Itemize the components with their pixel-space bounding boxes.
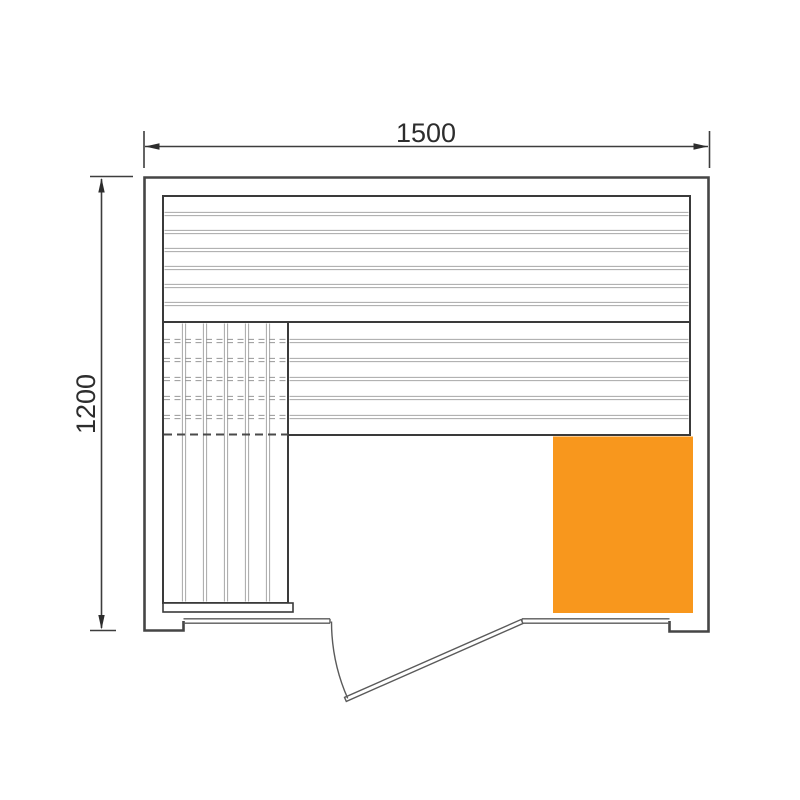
dimension-depth: 1200: [71, 177, 133, 631]
upper-bench: [163, 196, 690, 322]
door-swing-arc: [332, 622, 348, 699]
door: [332, 619, 523, 701]
arrow-left-icon: [145, 143, 160, 149]
side-bench: [163, 322, 293, 612]
floor-plan-drawing: 1500 1200: [0, 0, 800, 800]
lower-bench: [288, 322, 690, 435]
front-wall-left-segment: [184, 619, 331, 623]
upper-bench-outline: [163, 196, 690, 322]
door-leaf: [345, 619, 523, 701]
depth-dimension-label: 1200: [71, 374, 101, 434]
arrow-right-icon: [694, 143, 709, 149]
heater-block: [553, 437, 693, 614]
floor-plan-page: 1500 1200: [0, 0, 800, 800]
arrow-up-icon: [98, 178, 104, 193]
arrow-down-icon: [98, 615, 104, 630]
front-wall-right-segment: [522, 619, 670, 623]
dimension-width: 1500: [144, 118, 710, 168]
side-bench-front-edge: [163, 603, 293, 612]
width-dimension-label: 1500: [396, 118, 456, 148]
